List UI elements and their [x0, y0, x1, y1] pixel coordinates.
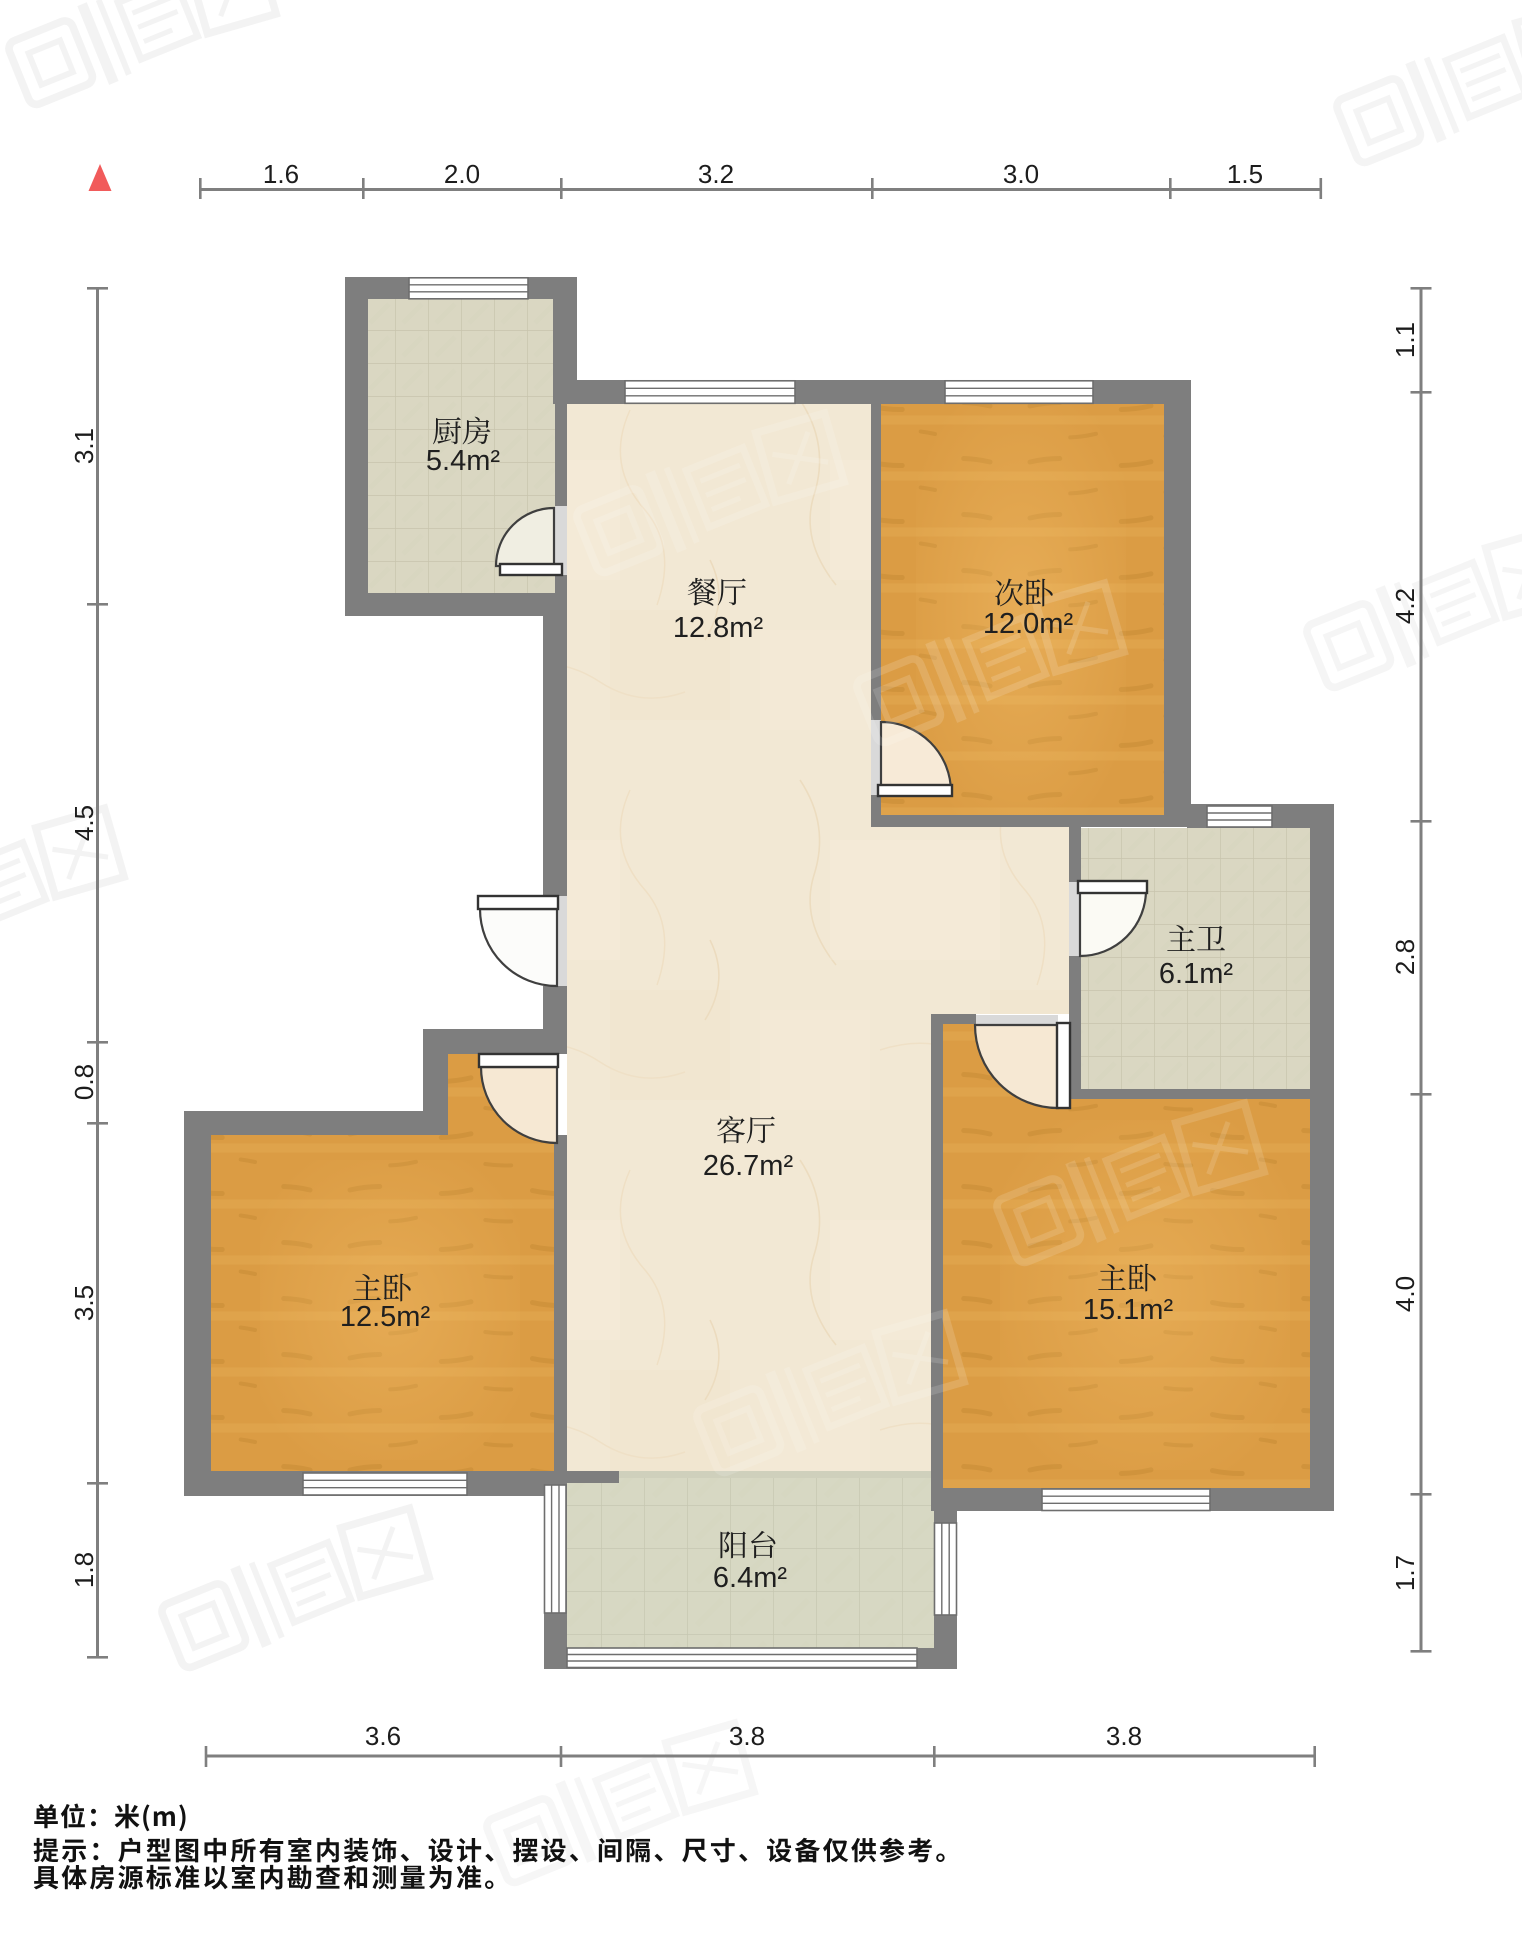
svg-text:3.1: 3.1 — [69, 428, 99, 464]
svg-text:12.5m²: 12.5m² — [340, 1301, 431, 1333]
svg-text:4.0: 4.0 — [1390, 1276, 1420, 1312]
svg-text:5.4m²: 5.4m² — [426, 445, 500, 477]
svg-text:12.8m²: 12.8m² — [673, 612, 764, 644]
svg-text:1.6: 1.6 — [263, 159, 299, 189]
svg-text:2.0: 2.0 — [444, 159, 480, 189]
svg-text:1.1: 1.1 — [1390, 322, 1420, 358]
svg-text:3.8: 3.8 — [1106, 1721, 1142, 1751]
svg-text:3.6: 3.6 — [365, 1721, 401, 1751]
svg-text:4.5: 4.5 — [69, 805, 99, 841]
svg-text:1.8: 1.8 — [69, 1552, 99, 1588]
svg-text:3.0: 3.0 — [1003, 159, 1039, 189]
svg-text:3.5: 3.5 — [69, 1285, 99, 1321]
svg-text:2.8: 2.8 — [1390, 939, 1420, 975]
svg-text:1.7: 1.7 — [1390, 1555, 1420, 1591]
svg-text:3.2: 3.2 — [698, 159, 734, 189]
svg-text:12.0m²: 12.0m² — [983, 608, 1074, 640]
svg-text:6.1m²: 6.1m² — [1159, 958, 1233, 990]
svg-text:26.7m²: 26.7m² — [703, 1150, 794, 1182]
svg-text:1.5: 1.5 — [1227, 159, 1263, 189]
svg-text:6.4m²: 6.4m² — [713, 1562, 787, 1594]
svg-text:4.2: 4.2 — [1390, 588, 1420, 624]
svg-text:3.8: 3.8 — [729, 1721, 765, 1751]
svg-text:0.8: 0.8 — [69, 1064, 99, 1100]
svg-text:15.1m²: 15.1m² — [1083, 1294, 1174, 1326]
